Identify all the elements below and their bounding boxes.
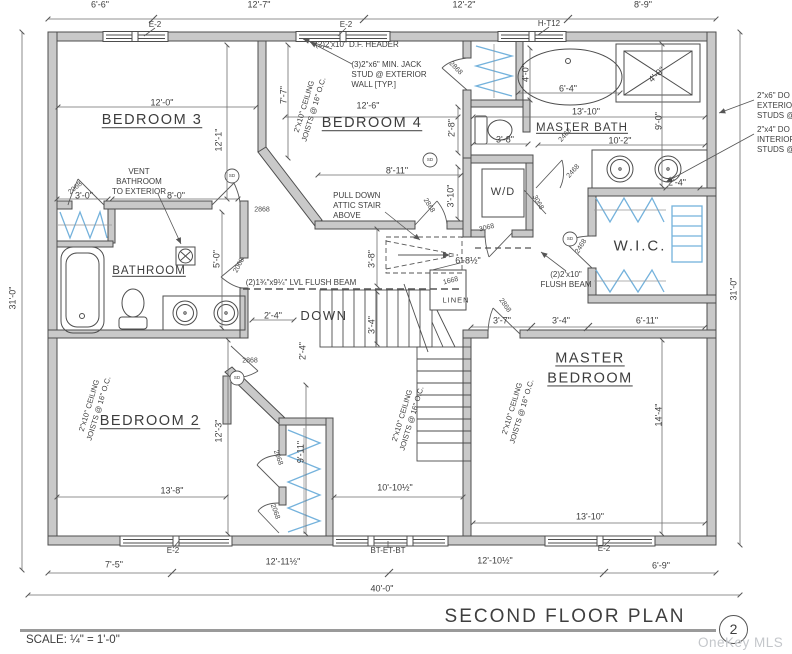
staircase [320, 284, 471, 461]
page-title: SECOND FLOOR PLAN [400, 606, 730, 628]
window-icon [296, 32, 390, 42]
bathtub-icon [61, 247, 104, 333]
linen-closet [430, 270, 466, 310]
sink-vanity-icon [163, 296, 245, 330]
scale-note: SCALE: ¼" = 1'-0" [26, 634, 120, 646]
shower-icon [616, 44, 700, 102]
toilet-icon [475, 116, 512, 144]
window-icon [333, 536, 448, 546]
structural-dashed [243, 237, 535, 289]
window-icon [103, 32, 168, 42]
washer-dryer-icon [482, 169, 524, 217]
title-underline [20, 629, 716, 632]
window-icon [498, 32, 566, 42]
window-icon [545, 536, 655, 546]
floor-plan-page: 6'-6"12'-7"12'-2"8'-9"E-2E-2H-T1231'-0"3… [0, 0, 792, 654]
toilet-icon [119, 289, 147, 329]
floor-plan-drawing [0, 0, 792, 654]
watermark: OneKey MLS [698, 635, 783, 650]
soaking-tub-icon [518, 49, 622, 105]
closet-rods [58, 44, 666, 534]
exhaust-fan-icon [176, 247, 195, 265]
